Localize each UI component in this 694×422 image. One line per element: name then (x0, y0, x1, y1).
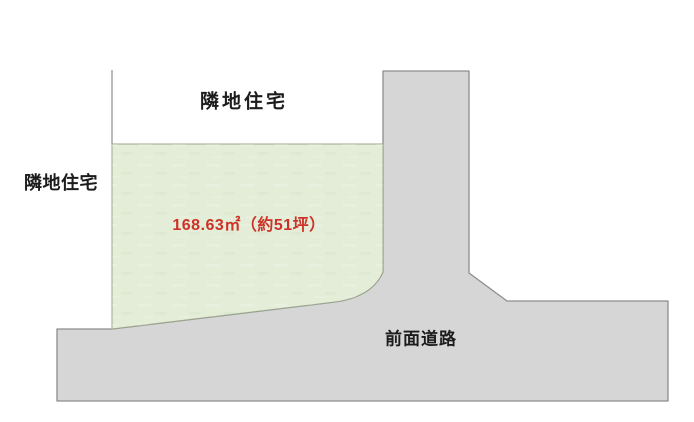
plot-drawing (0, 0, 694, 422)
parcel-area-label: 168.63㎡（約51坪） (172, 211, 325, 235)
neighbor-top-label: 隣地住宅 (200, 87, 288, 114)
front-road-label: 前面道路 (385, 325, 457, 350)
neighbor-left-label: 隣地住宅 (24, 169, 98, 195)
land-plot-diagram: 隣地住宅 隣地住宅 168.63㎡（約51坪） 前面道路 (0, 0, 694, 422)
